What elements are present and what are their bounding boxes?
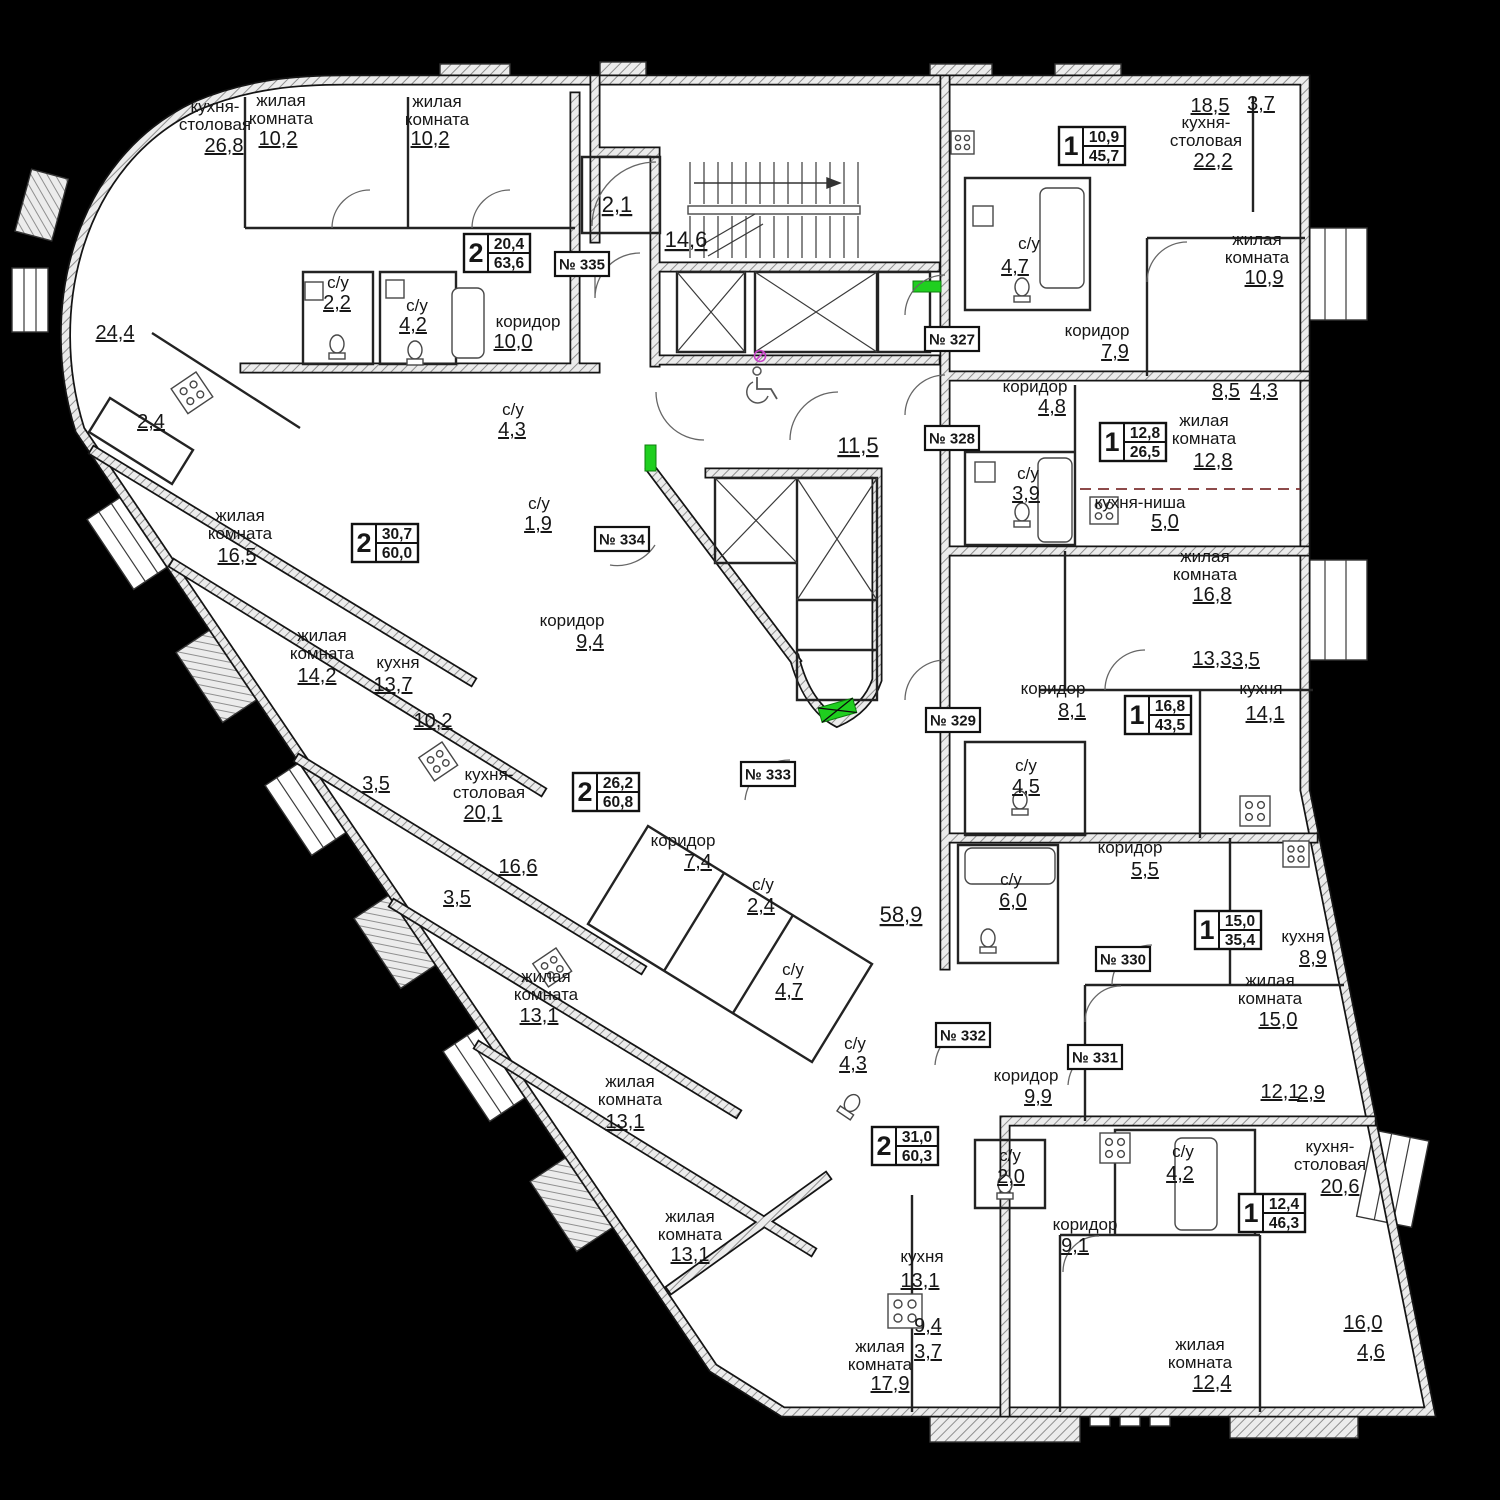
svg-text:№ 331: № 331 [1072, 1050, 1118, 1067]
svg-text:12,8: 12,8 [1130, 425, 1161, 442]
svg-text:3,9: 3,9 [1012, 483, 1040, 505]
svg-text:кухня-: кухня- [1306, 1137, 1355, 1156]
room-label: с/у1,9 [524, 494, 552, 535]
svg-text:3,5: 3,5 [1232, 649, 1260, 671]
svg-text:45,7: 45,7 [1089, 148, 1119, 165]
apartment-number-badge: № 331 [1068, 1045, 1122, 1069]
svg-text:2: 2 [468, 238, 483, 268]
svg-text:5,0: 5,0 [1151, 511, 1179, 533]
svg-text:3,7: 3,7 [1247, 93, 1275, 115]
svg-text:30,7: 30,7 [382, 526, 412, 543]
svg-text:№ 335: № 335 [559, 257, 605, 274]
svg-text:1: 1 [1104, 427, 1119, 457]
svg-text:1: 1 [1243, 1198, 1258, 1228]
svg-text:с/у: с/у [752, 875, 774, 894]
svg-text:22,2: 22,2 [1194, 150, 1233, 172]
apartment-info-box: 115,035,4 [1195, 911, 1261, 949]
svg-text:16,8: 16,8 [1155, 698, 1186, 715]
svg-text:столовая: столовая [1294, 1155, 1366, 1174]
room-label: с/у4,3 [839, 1034, 867, 1075]
apartment-number-badge: № 327 [925, 327, 979, 351]
svg-text:комната: комната [848, 1355, 913, 1374]
svg-text:коридор: коридор [651, 831, 716, 850]
svg-text:3,7: 3,7 [914, 1341, 942, 1363]
svg-text:26,5: 26,5 [1130, 444, 1161, 461]
svg-text:4,2: 4,2 [399, 314, 427, 336]
floor-plan-page: кухня-столовая26,8жилаякомната10,2жилаяк… [0, 0, 1500, 1500]
svg-text:7,9: 7,9 [1101, 341, 1129, 363]
svg-text:14,6: 14,6 [665, 227, 708, 252]
svg-text:№ 329: № 329 [930, 713, 976, 730]
svg-text:2: 2 [577, 777, 592, 807]
svg-text:4,3: 4,3 [1250, 380, 1278, 402]
svg-text:13,3: 13,3 [1193, 648, 1232, 670]
room-label: с/у2,0 [997, 1146, 1025, 1188]
svg-text:коридор: коридор [1098, 838, 1163, 857]
svg-text:9,1: 9,1 [1061, 1235, 1089, 1257]
svg-text:№ 334: № 334 [599, 532, 646, 549]
svg-text:4,3: 4,3 [498, 419, 526, 441]
apartment-info-box: 112,826,5 [1100, 423, 1166, 461]
svg-text:13,1: 13,1 [901, 1270, 940, 1292]
svg-text:жилая: жилая [1179, 411, 1228, 430]
svg-text:коридор: коридор [540, 611, 605, 630]
svg-text:1: 1 [1063, 131, 1078, 161]
svg-text:жилая: жилая [521, 967, 570, 986]
svg-text:13,1: 13,1 [671, 1244, 710, 1266]
svg-text:18,5: 18,5 [1191, 95, 1230, 117]
svg-text:2: 2 [356, 528, 371, 558]
svg-text:58,9: 58,9 [880, 902, 923, 927]
svg-text:60,8: 60,8 [603, 794, 634, 811]
svg-text:коридор: коридор [1021, 679, 1086, 698]
svg-text:17,9: 17,9 [871, 1373, 910, 1395]
svg-text:2,0: 2,0 [997, 1166, 1025, 1188]
svg-text:9,9: 9,9 [1024, 1086, 1052, 1108]
svg-text:4,7: 4,7 [775, 980, 803, 1002]
svg-text:15,0: 15,0 [1259, 1009, 1298, 1031]
svg-text:11,5: 11,5 [837, 433, 878, 458]
svg-text:столовая: столовая [453, 783, 525, 802]
svg-text:с/у: с/у [999, 1146, 1021, 1165]
svg-text:комната: комната [1238, 989, 1303, 1008]
svg-text:жилая: жилая [215, 506, 264, 525]
svg-text:12,1: 12,1 [1261, 1081, 1300, 1103]
svg-text:кухня: кухня [900, 1247, 943, 1266]
svg-text:16,8: 16,8 [1193, 584, 1232, 606]
svg-text:63,6: 63,6 [494, 255, 525, 272]
svg-text:10,0: 10,0 [494, 331, 533, 353]
room-label: с/у4,3 [498, 400, 526, 441]
svg-text:жилая: жилая [412, 92, 461, 111]
apartment-number-badge: № 332 [936, 1023, 990, 1047]
svg-text:комната: комната [658, 1225, 723, 1244]
svg-text:20,1: 20,1 [464, 802, 503, 824]
svg-text:1: 1 [1199, 915, 1214, 945]
apartment-info-box: 226,260,8 [573, 773, 639, 811]
svg-text:2: 2 [876, 1131, 891, 1161]
svg-text:кухня: кухня [1281, 927, 1324, 946]
svg-text:14,1: 14,1 [1246, 703, 1285, 725]
svg-text:комната: комната [598, 1090, 663, 1109]
room-label: кухня13,1 [900, 1247, 943, 1292]
floor-plan-drawing: кухня-столовая26,8жилаякомната10,2жилаяк… [0, 0, 1500, 1500]
svg-text:26,8: 26,8 [205, 135, 244, 157]
apartment-info-box: 116,843,5 [1125, 696, 1191, 734]
apartment-number-badge: № 328 [925, 426, 979, 450]
svg-text:кухня-ниша: кухня-ниша [1095, 493, 1186, 512]
apartment-number-badge: № 330 [1096, 947, 1150, 971]
svg-text:4,5: 4,5 [1012, 776, 1040, 798]
svg-text:с/у: с/у [1018, 234, 1040, 253]
svg-text:10,9: 10,9 [1245, 267, 1284, 289]
svg-text:№ 332: № 332 [940, 1028, 986, 1045]
svg-text:№ 328: № 328 [929, 431, 975, 448]
apartment-number-badge: № 335 [555, 252, 609, 276]
svg-text:1,9: 1,9 [524, 513, 552, 535]
svg-text:коридор: коридор [1053, 1215, 1118, 1234]
svg-text:31,0: 31,0 [902, 1129, 932, 1146]
svg-text:16,5: 16,5 [218, 545, 257, 567]
svg-text:1: 1 [1129, 700, 1144, 730]
svg-text:с/у: с/у [1172, 1142, 1194, 1161]
svg-text:2,9: 2,9 [1297, 1082, 1325, 1104]
svg-text:2,1: 2,1 [602, 192, 633, 217]
svg-text:13,1: 13,1 [520, 1005, 559, 1027]
svg-text:жилая: жилая [665, 1207, 714, 1226]
svg-text:с/у: с/у [502, 400, 524, 419]
svg-text:2,2: 2,2 [323, 292, 351, 314]
svg-text:13,1: 13,1 [606, 1111, 645, 1133]
svg-text:столовая: столовая [179, 115, 251, 134]
svg-text:комната: комната [405, 110, 470, 129]
svg-text:60,0: 60,0 [382, 545, 412, 562]
svg-text:16,0: 16,0 [1344, 1312, 1383, 1334]
svg-text:столовая: столовая [1170, 131, 1242, 150]
svg-text:3,5: 3,5 [362, 773, 390, 795]
svg-text:12,4: 12,4 [1269, 1196, 1300, 1213]
apartment-info-box: 112,446,3 [1239, 1194, 1305, 1232]
svg-text:4,3: 4,3 [839, 1053, 867, 1075]
svg-text:35,4: 35,4 [1225, 932, 1256, 949]
svg-text:60,3: 60,3 [902, 1148, 933, 1165]
apartment-info-box: 231,060,3 [872, 1127, 938, 1165]
svg-text:коридор: коридор [496, 312, 561, 331]
svg-text:12,4: 12,4 [1193, 1372, 1232, 1394]
svg-text:комната: комната [1168, 1353, 1233, 1372]
svg-text:10,9: 10,9 [1089, 129, 1120, 146]
svg-text:26,2: 26,2 [603, 775, 633, 792]
svg-text:9,4: 9,4 [576, 631, 604, 653]
svg-text:3,5: 3,5 [443, 887, 471, 909]
svg-text:12,8: 12,8 [1194, 450, 1233, 472]
svg-text:жилая: жилая [1245, 971, 1294, 990]
svg-text:8,5: 8,5 [1212, 380, 1240, 402]
svg-text:с/у: с/у [1015, 756, 1037, 775]
svg-text:жилая: жилая [256, 91, 305, 110]
svg-text:№ 327: № 327 [929, 332, 975, 349]
apartment-info-box: 110,945,7 [1059, 127, 1125, 165]
svg-text:13,7: 13,7 [374, 674, 413, 696]
svg-text:кухня: кухня [1239, 679, 1282, 698]
svg-text:с/у: с/у [528, 494, 550, 513]
svg-text:комната: комната [1172, 429, 1237, 448]
room-label: с/у3,9 [1012, 464, 1040, 505]
svg-text:коридор: коридор [1003, 377, 1068, 396]
room-label: с/у4,5 [1012, 756, 1040, 798]
svg-text:7,4: 7,4 [684, 851, 712, 873]
svg-text:кухня-: кухня- [191, 97, 240, 116]
svg-text:жилая: жилая [1175, 1335, 1224, 1354]
svg-text:46,3: 46,3 [1269, 1215, 1300, 1232]
svg-text:5,5: 5,5 [1131, 859, 1159, 881]
svg-text:кухня: кухня [376, 653, 419, 672]
svg-text:20,6: 20,6 [1321, 1176, 1360, 1198]
room-label: с/у2,2 [323, 273, 351, 314]
svg-text:9,4: 9,4 [914, 1315, 942, 1337]
svg-text:коридор: коридор [994, 1066, 1059, 1085]
svg-text:жилая: жилая [297, 626, 346, 645]
svg-text:24,4: 24,4 [96, 322, 135, 344]
svg-text:4,6: 4,6 [1357, 1341, 1385, 1363]
svg-text:20,4: 20,4 [494, 236, 525, 253]
svg-text:с/у: с/у [1000, 870, 1022, 889]
svg-text:43,5: 43,5 [1155, 717, 1186, 734]
apartment-number-badge: № 329 [926, 708, 980, 732]
svg-text:4,7: 4,7 [1001, 256, 1029, 278]
svg-text:кухня-: кухня- [465, 765, 514, 784]
room-label: с/у2,4 [747, 875, 775, 917]
apartment-info-box: 220,463,6 [464, 234, 530, 272]
svg-text:жилая: жилая [1232, 230, 1281, 249]
svg-text:с/у: с/у [406, 296, 428, 315]
svg-text:2,4: 2,4 [137, 411, 165, 433]
svg-text:10,2: 10,2 [259, 128, 298, 150]
svg-text:комната: комната [1173, 565, 1238, 584]
svg-text:№ 330: № 330 [1100, 952, 1146, 969]
svg-text:с/у: с/у [844, 1034, 866, 1053]
svg-text:коридор: коридор [1065, 321, 1130, 340]
apartment-info-box: 230,760,0 [352, 524, 418, 562]
svg-text:жилая: жилая [605, 1072, 654, 1091]
svg-text:с/у: с/у [327, 273, 349, 292]
apartment-number-badge: № 334 [595, 527, 649, 551]
svg-text:15,0: 15,0 [1225, 913, 1255, 930]
svg-text:4,2: 4,2 [1166, 1163, 1194, 1185]
svg-text:6,0: 6,0 [999, 890, 1027, 912]
svg-text:16,6: 16,6 [499, 856, 538, 878]
svg-text:жилая: жилая [855, 1337, 904, 1356]
svg-text:2,4: 2,4 [747, 895, 775, 917]
svg-text:с/у: с/у [1017, 464, 1039, 483]
svg-text:с/у: с/у [782, 960, 804, 979]
svg-text:№ 333: № 333 [745, 767, 791, 784]
svg-text:комната: комната [249, 109, 314, 128]
svg-text:комната: комната [208, 524, 273, 543]
svg-text:комната: комната [290, 644, 355, 663]
svg-text:14,2: 14,2 [298, 665, 337, 687]
svg-text:8,9: 8,9 [1299, 947, 1327, 969]
svg-text:4,8: 4,8 [1038, 396, 1066, 418]
svg-text:10,2: 10,2 [414, 710, 453, 732]
svg-text:жилая: жилая [1180, 547, 1229, 566]
svg-text:комната: комната [514, 985, 579, 1004]
apartment-number-badge: № 333 [741, 762, 795, 786]
svg-text:8,1: 8,1 [1058, 700, 1086, 722]
svg-text:10,2: 10,2 [411, 128, 450, 150]
svg-text:комната: комната [1225, 248, 1290, 267]
